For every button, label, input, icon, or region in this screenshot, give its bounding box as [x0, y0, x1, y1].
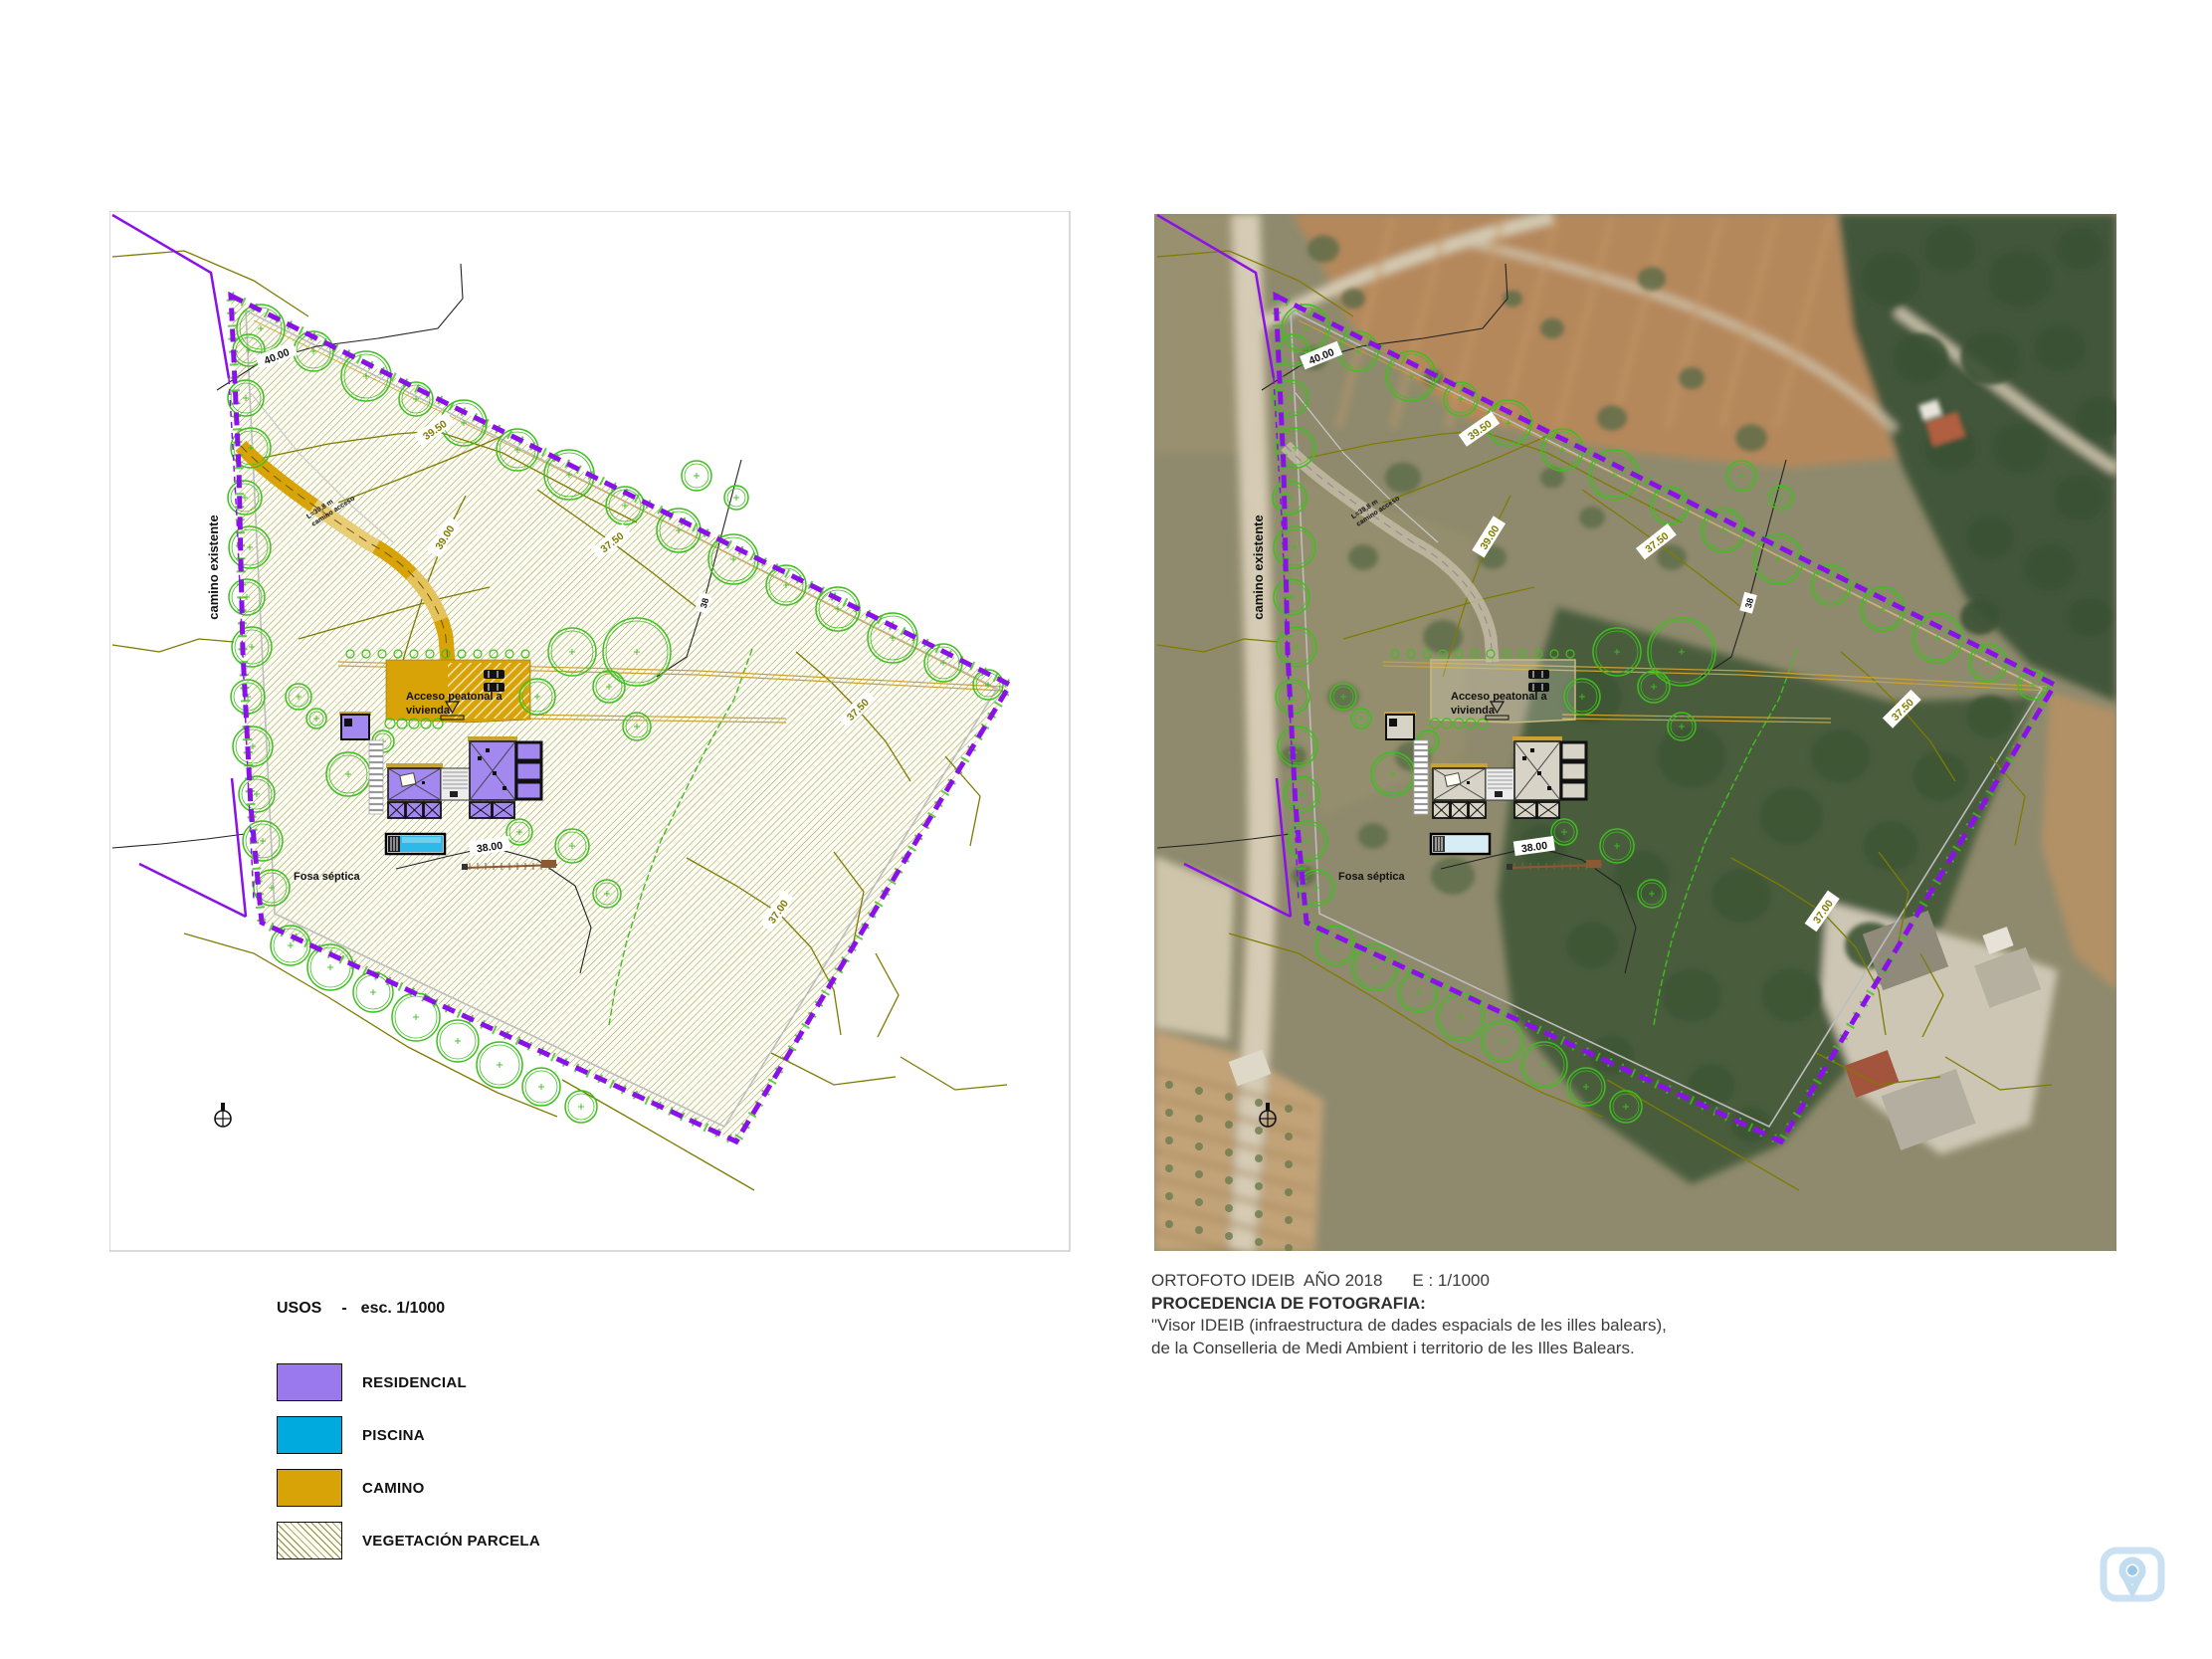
- legend-title-scale: esc. 1/1000: [361, 1300, 446, 1318]
- fosa-septica-label: Fosa séptica: [1338, 871, 1406, 883]
- legend-label-vegetacion: VEGETACIÓN PARCELA: [362, 1533, 540, 1550]
- ortofoto-heading: PROCEDENCIA DE FOTOGRAFIA:: [1151, 1293, 1667, 1316]
- legend-item-residencial: RESIDENCIAL: [277, 1363, 540, 1401]
- legend-items: RESIDENCIAL PISCINA CAMINO VEGETACIÓN PA…: [277, 1363, 540, 1559]
- legend-label-piscina: PISCINA: [362, 1427, 425, 1444]
- piscina-pool: [386, 834, 445, 854]
- outbuilding: [341, 715, 369, 739]
- legend-swatch-residencial: [277, 1363, 342, 1401]
- legend-label-camino: CAMINO: [362, 1480, 425, 1497]
- ortofoto-source-2: de la Conselleria de Medi Ambient i terr…: [1151, 1338, 1667, 1360]
- legend: USOS - esc. 1/1000 RESIDENCIAL PISCINA C…: [277, 1300, 540, 1574]
- ortofoto-source-1: "Visor IDEIB (infraestructura de dades e…: [1151, 1315, 1667, 1338]
- legend-swatch-piscina: [277, 1416, 342, 1454]
- plan-sheet: 40.0039.5039.0037.503837.5038.0037.00cam…: [0, 0, 2212, 1659]
- ortofoto-caption: ORTOFOTO IDEIB AÑO 2018E : 1/1000 PROCED…: [1151, 1270, 1667, 1359]
- plan-drawing: 40.0039.5039.0037.503837.5038.0037.00cam…: [109, 211, 1070, 1251]
- legend-swatch-camino: [277, 1469, 342, 1507]
- porch-cell: [1561, 782, 1586, 799]
- camino-existente-label: camino existente: [1251, 515, 1266, 620]
- ortofoto-title-line: ORTOFOTO IDEIB AÑO 2018E : 1/1000: [1151, 1270, 1667, 1293]
- acceso-label-1: Acceso peatonal a: [1451, 691, 1547, 703]
- legend-label-residencial: RESIDENCIAL: [362, 1374, 467, 1391]
- porch-cell: [1561, 762, 1586, 780]
- porch-cell: [516, 762, 541, 780]
- acceso-label-1: Acceso peatonal a: [406, 691, 503, 703]
- legend-item-vegetacion: VEGETACIÓN PARCELA: [277, 1522, 540, 1559]
- piscina-pool: [1431, 834, 1490, 854]
- ortofoto-title: ORTOFOTO IDEIB AÑO 2018: [1151, 1271, 1382, 1290]
- fosa-septica-label: Fosa séptica: [294, 871, 361, 883]
- acceso-label-2: vivienda: [1451, 705, 1496, 717]
- photo-watermark-icon: [2098, 1545, 2171, 1610]
- ortofoto-scale: E : 1/1000: [1412, 1271, 1490, 1290]
- porch-cell: [516, 782, 541, 799]
- porch-cell: [1561, 742, 1586, 760]
- legend-title-separator: -: [341, 1300, 346, 1318]
- ortofoto-plan: 40.0039.5039.0037.503837.5038.0037.00cam…: [1154, 214, 2116, 1251]
- legend-title-usos: USOS: [277, 1300, 321, 1318]
- usos-plan: 40.0039.5039.0037.503837.5038.0037.00cam…: [109, 211, 1071, 1252]
- acceso-label-2: vivienda: [406, 705, 451, 717]
- legend-item-piscina: PISCINA: [277, 1416, 540, 1454]
- legend-item-camino: CAMINO: [277, 1469, 540, 1507]
- car-icon: [1528, 670, 1549, 679]
- car-icon: [484, 670, 504, 679]
- porch-cell: [516, 742, 541, 760]
- camino-existente-label: camino existente: [206, 515, 221, 620]
- legend-swatch-vegetacion: [277, 1522, 342, 1559]
- legend-title: USOS - esc. 1/1000: [277, 1300, 540, 1318]
- outbuilding: [1386, 715, 1414, 739]
